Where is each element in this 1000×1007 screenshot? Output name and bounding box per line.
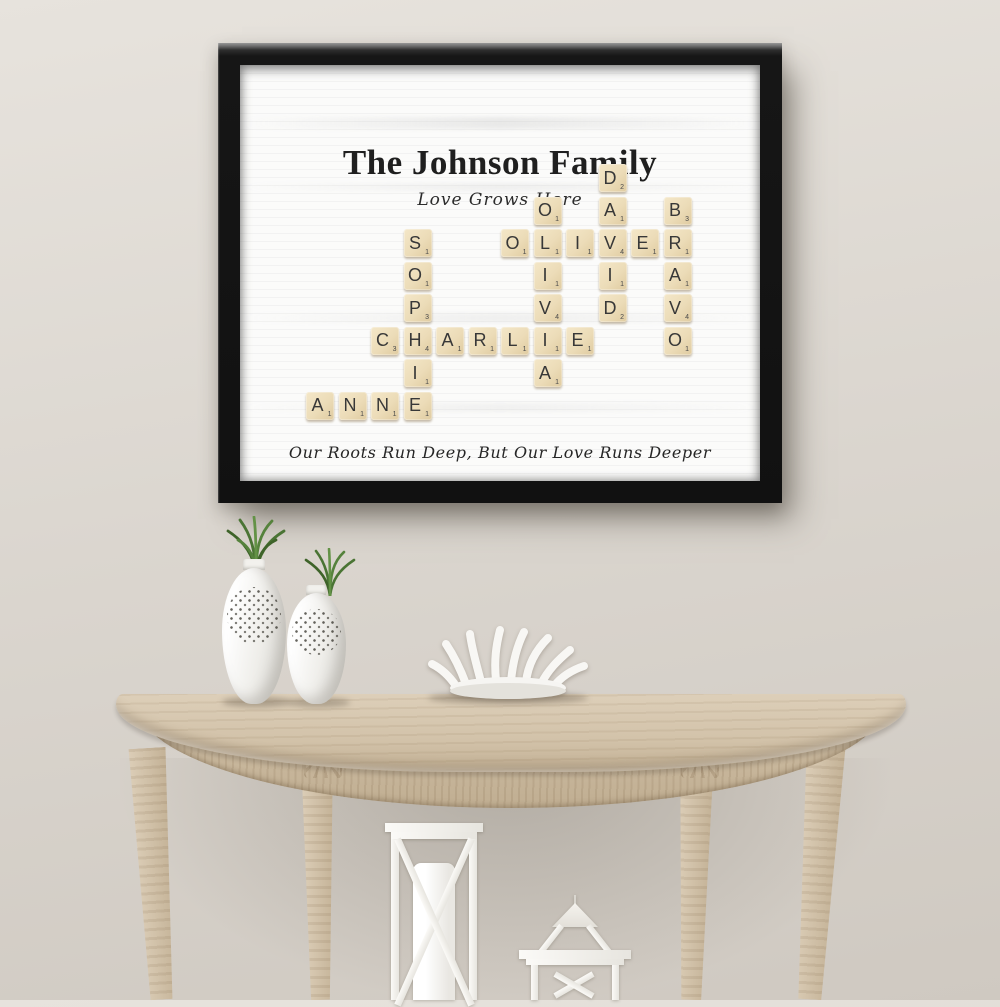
pierced-pattern — [227, 587, 281, 644]
tile-letter: V — [599, 229, 622, 257]
scrabble-tile-p: P3 — [404, 294, 432, 322]
scrabble-tile-d: D2 — [599, 164, 627, 192]
scrabble-crossword: D2O1A1B3S1O1L1I1V4E1R1O1I1I1A1P3V4D2V4C3… — [306, 164, 760, 481]
scrabble-tile-i: I1 — [534, 327, 562, 355]
scrabble-tile-v: V4 — [599, 229, 627, 257]
tile-value: 2 — [620, 184, 624, 191]
scrabble-tile-e: E1 — [404, 392, 432, 420]
tile-value: 1 — [425, 249, 429, 256]
tile-value: 4 — [620, 249, 624, 256]
scrabble-tile-a: A1 — [664, 262, 692, 290]
tile-letter: A — [599, 197, 622, 225]
scrabble-tile-c: C3 — [371, 327, 399, 355]
pierced-vase-right — [287, 593, 346, 704]
tile-letter: L — [501, 327, 524, 355]
pierced-pattern — [292, 609, 342, 656]
tile-value: 1 — [555, 216, 559, 223]
scrabble-tile-l: L1 — [501, 327, 529, 355]
grass-plant-right — [294, 548, 366, 596]
tile-letter: D — [599, 164, 622, 192]
tile-value: 2 — [620, 314, 624, 321]
tile-letter: I — [404, 359, 427, 387]
tile-value: 1 — [425, 379, 429, 386]
scrabble-tile-v: V4 — [664, 294, 692, 322]
picture-frame: The Johnson Family Love Grows Here D2O1A… — [218, 43, 782, 503]
scrabble-tile-l: L1 — [534, 229, 562, 257]
scrabble-tile-h: H4 — [404, 327, 432, 355]
scrabble-tile-i: I1 — [404, 359, 432, 387]
scrabble-tile-o: O1 — [404, 262, 432, 290]
tile-letter: P — [404, 294, 427, 322]
scrabble-tile-n: N1 — [339, 392, 367, 420]
lantern-cap — [385, 823, 483, 832]
tile-value: 1 — [588, 346, 592, 353]
scrabble-tile-s: S1 — [404, 229, 432, 257]
scrabble-tile-i: I1 — [599, 262, 627, 290]
tile-value: 1 — [425, 281, 429, 288]
tile-letter: V — [534, 294, 557, 322]
tile-value: 1 — [425, 411, 429, 418]
tile-value: 1 — [555, 379, 559, 386]
tile-value: 3 — [393, 346, 397, 353]
scrabble-tile-e: E1 — [631, 229, 659, 257]
tile-value: 1 — [523, 249, 527, 256]
scrabble-tile-r: R1 — [469, 327, 497, 355]
tile-letter: A — [306, 392, 329, 420]
tall-lantern-with-candle — [388, 823, 480, 1000]
tile-letter: A — [436, 327, 459, 355]
tile-value: 1 — [620, 281, 624, 288]
lantern-post — [612, 965, 619, 1000]
tile-letter: S — [404, 229, 427, 257]
tile-value: 1 — [393, 411, 397, 418]
tile-value: 4 — [555, 314, 559, 321]
tile-letter: B — [664, 197, 687, 225]
tile-value: 1 — [685, 346, 689, 353]
tile-value: 1 — [685, 281, 689, 288]
tile-letter: I — [534, 262, 557, 290]
tile-letter: V — [664, 294, 687, 322]
scrabble-tile-a: A1 — [599, 197, 627, 225]
tile-value: 4 — [425, 346, 429, 353]
small-lantern — [519, 895, 631, 1000]
pierced-vase-left — [222, 568, 286, 704]
tile-letter: N — [371, 392, 394, 420]
scrabble-tile-v: V4 — [534, 294, 562, 322]
tile-letter: O — [664, 327, 687, 355]
lantern-post — [531, 965, 538, 1000]
tile-letter: H — [404, 327, 427, 355]
tile-letter: R — [664, 229, 687, 257]
tile-value: 1 — [458, 346, 462, 353]
lantern-cap — [391, 832, 477, 839]
tile-value: 1 — [620, 216, 624, 223]
tile-letter: O — [534, 197, 557, 225]
tile-value: 3 — [685, 216, 689, 223]
tile-value: 1 — [328, 411, 332, 418]
scrabble-tile-r: R1 — [664, 229, 692, 257]
tile-letter: N — [339, 392, 362, 420]
tile-letter: C — [371, 327, 394, 355]
tile-letter: E — [404, 392, 427, 420]
tile-value: 1 — [555, 249, 559, 256]
scrabble-tile-o: O1 — [501, 229, 529, 257]
tile-letter: O — [404, 262, 427, 290]
tile-letter: L — [534, 229, 557, 257]
tile-value: 1 — [555, 281, 559, 288]
scrabble-tile-n: N1 — [371, 392, 399, 420]
tile-letter: I — [534, 327, 557, 355]
wood-streak — [240, 117, 760, 129]
scrabble-tile-o: O1 — [664, 327, 692, 355]
tile-letter: I — [599, 262, 622, 290]
tile-letter: O — [501, 229, 524, 257]
poster-quote: Our Roots Run Deep, But Our Love Runs De… — [240, 443, 760, 462]
tile-letter: I — [566, 229, 589, 257]
scrabble-tile-a: A1 — [534, 359, 562, 387]
lantern-collar — [519, 950, 631, 959]
tile-letter: A — [664, 262, 687, 290]
scrabble-tile-b: B3 — [664, 197, 692, 225]
lantern-collar — [526, 959, 624, 965]
coral-bowl — [424, 624, 592, 702]
tile-value: 1 — [490, 346, 494, 353]
tile-letter: D — [599, 294, 622, 322]
tile-value: 4 — [685, 314, 689, 321]
tile-value: 1 — [588, 249, 592, 256]
scrabble-tile-i: I1 — [566, 229, 594, 257]
tile-value: 3 — [425, 314, 429, 321]
tile-value: 1 — [360, 411, 364, 418]
scrabble-tile-e: E1 — [566, 327, 594, 355]
scrabble-tile-a: A1 — [436, 327, 464, 355]
tile-letter: A — [534, 359, 557, 387]
tile-value: 1 — [653, 249, 657, 256]
scrabble-tile-i: I1 — [534, 262, 562, 290]
tile-letter: R — [469, 327, 492, 355]
lantern-post — [469, 839, 477, 1000]
lantern-post — [391, 839, 399, 1000]
scrabble-tile-a: A1 — [306, 392, 334, 420]
poster-canvas: The Johnson Family Love Grows Here D2O1A… — [240, 65, 760, 481]
tile-letter: E — [566, 327, 589, 355]
scrabble-tile-o: O1 — [534, 197, 562, 225]
tile-value: 1 — [555, 346, 559, 353]
scrabble-tile-d: D2 — [599, 294, 627, 322]
tile-value: 1 — [685, 249, 689, 256]
tile-value: 1 — [523, 346, 527, 353]
tile-letter: E — [631, 229, 654, 257]
